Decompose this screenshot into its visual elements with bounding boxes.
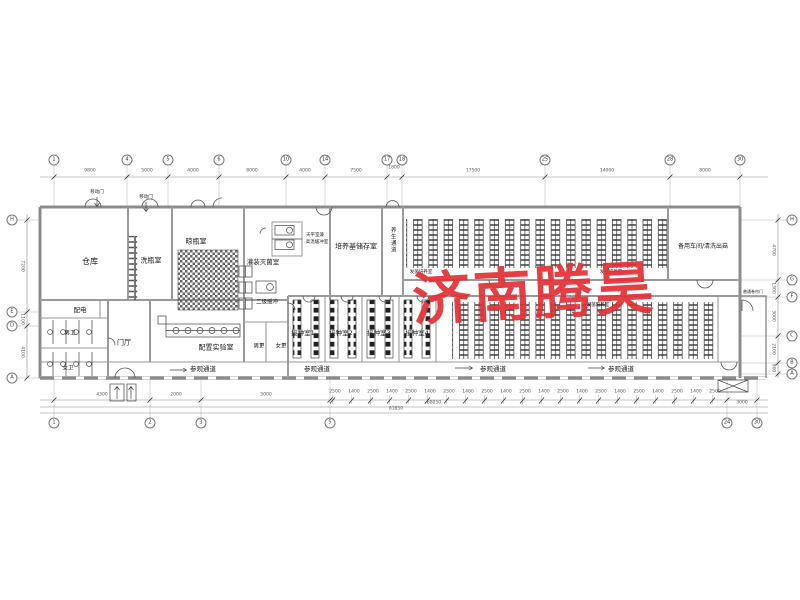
watermark-text: 济南腾昊: [410, 241, 658, 338]
plan-linework: [0, 0, 800, 600]
window-dimension-ticks: [330, 395, 720, 404]
drying-area-hatch: [178, 250, 238, 310]
bottle-rack-ladder: [129, 236, 137, 300]
floor-plan-canvas: 仓库洗瓶室晾瓶室灌装灭菌室天平室兼高温缓冲室培养基储存室养生通道发菌培养室发菌培…: [0, 0, 800, 600]
